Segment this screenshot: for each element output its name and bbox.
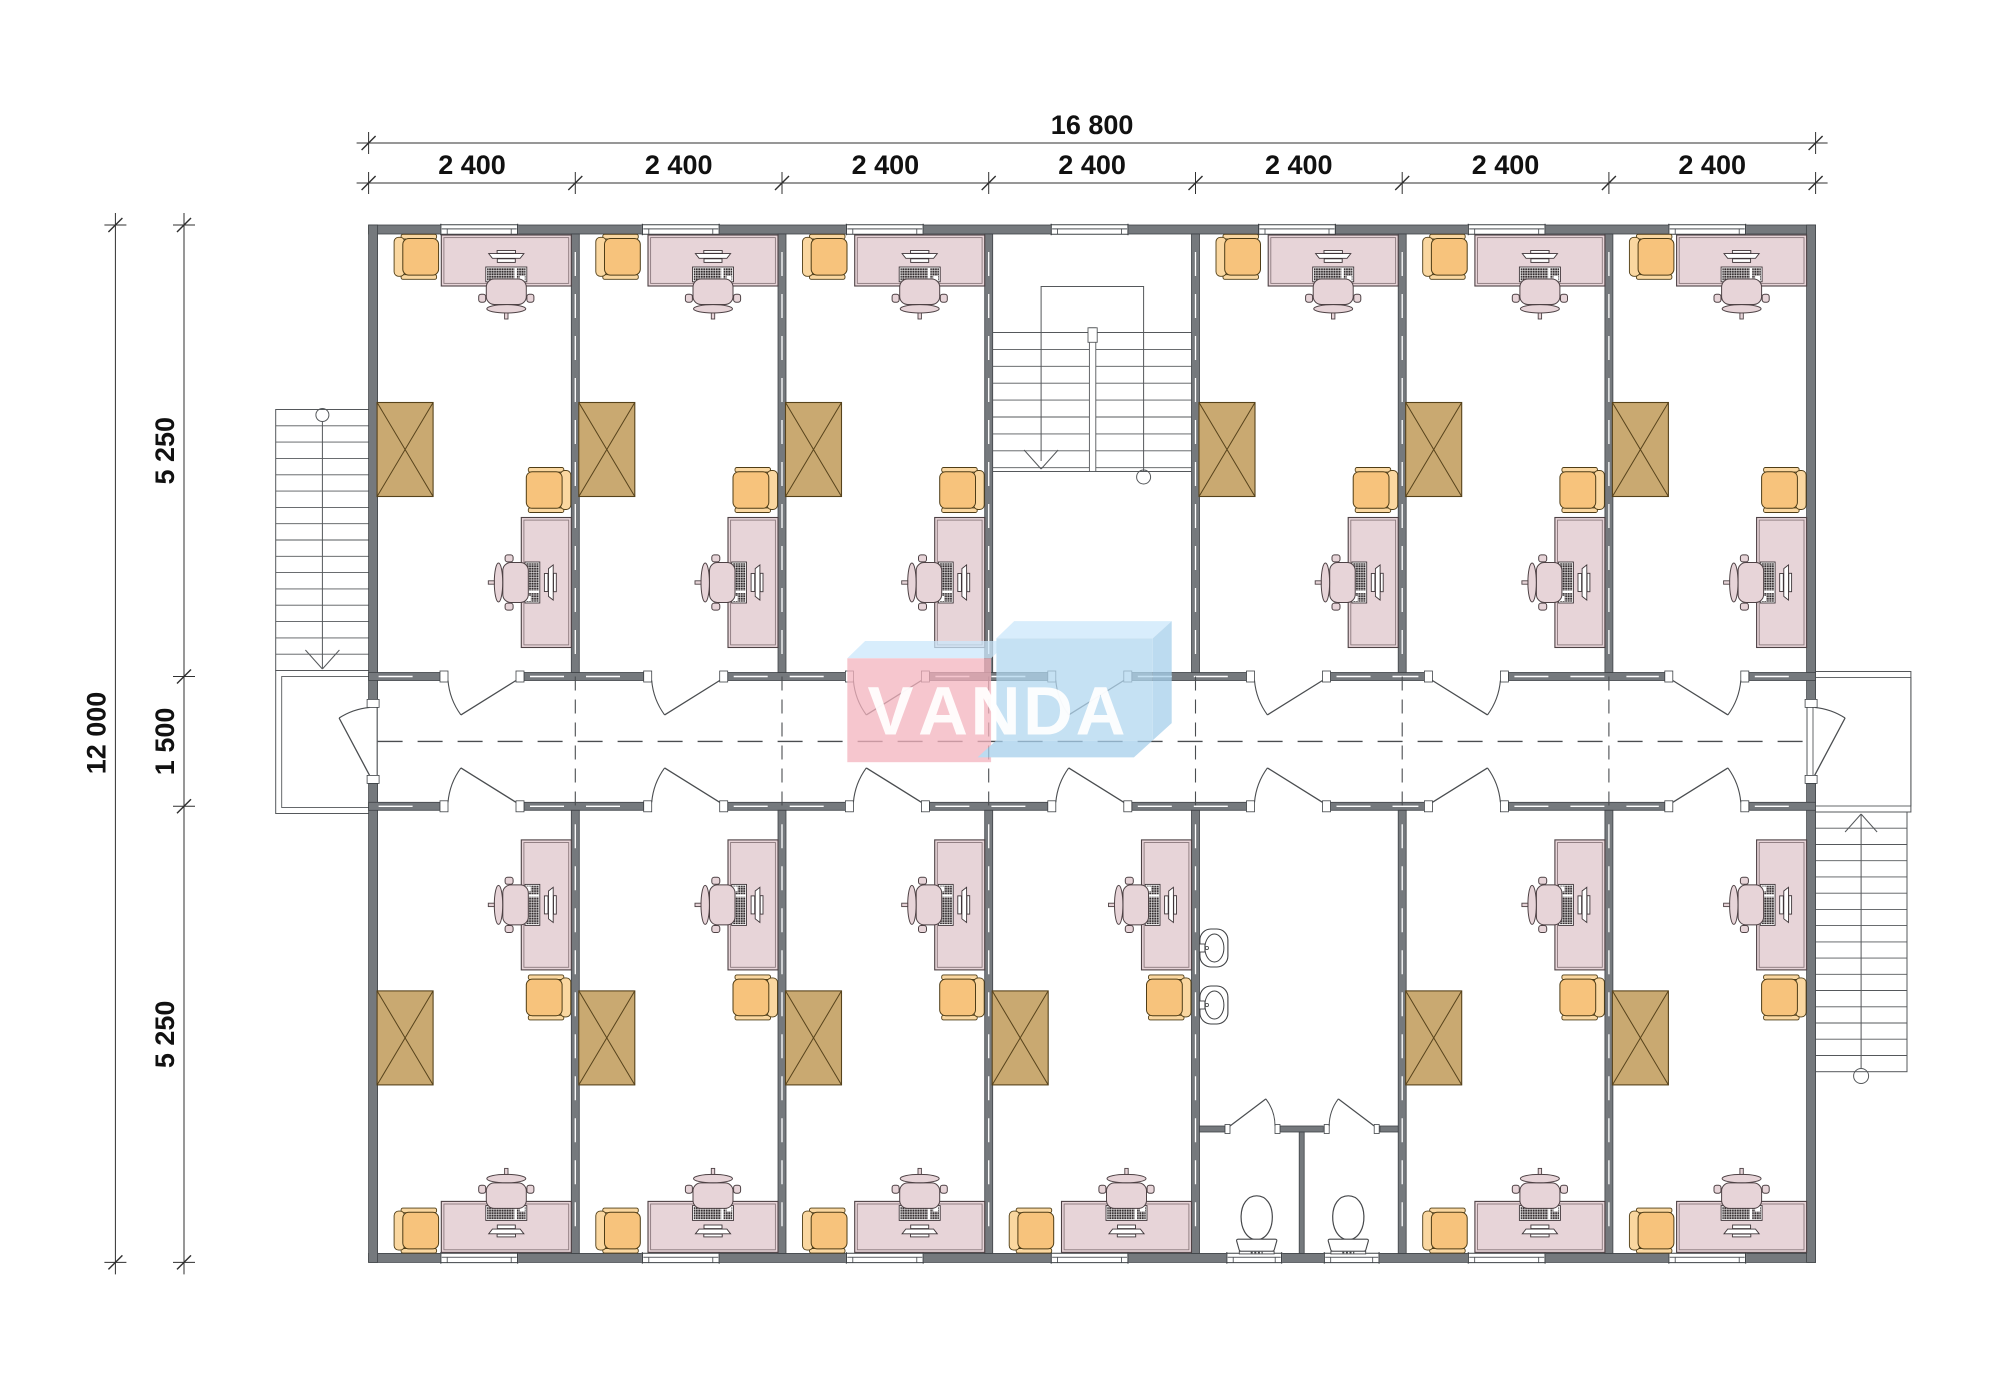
svg-text:2 400: 2 400 (1058, 150, 1126, 180)
svg-text:V: V (867, 673, 913, 750)
svg-text:D: D (1023, 673, 1073, 750)
svg-text:2 400: 2 400 (852, 150, 920, 180)
svg-text:N: N (971, 673, 1021, 750)
svg-text:2 400: 2 400 (1472, 150, 1540, 180)
svg-text:5 250: 5 250 (150, 1001, 180, 1069)
svg-text:12 000: 12 000 (81, 692, 111, 775)
svg-text:5 250: 5 250 (150, 417, 180, 485)
svg-text:1 500: 1 500 (150, 708, 180, 776)
svg-text:A: A (1076, 673, 1126, 750)
svg-text:A: A (918, 673, 968, 750)
svg-text:16 800: 16 800 (1051, 110, 1134, 140)
svg-text:2 400: 2 400 (438, 150, 506, 180)
svg-text:2 400: 2 400 (1265, 150, 1333, 180)
svg-text:2 400: 2 400 (1678, 150, 1746, 180)
svg-text:2 400: 2 400 (645, 150, 713, 180)
